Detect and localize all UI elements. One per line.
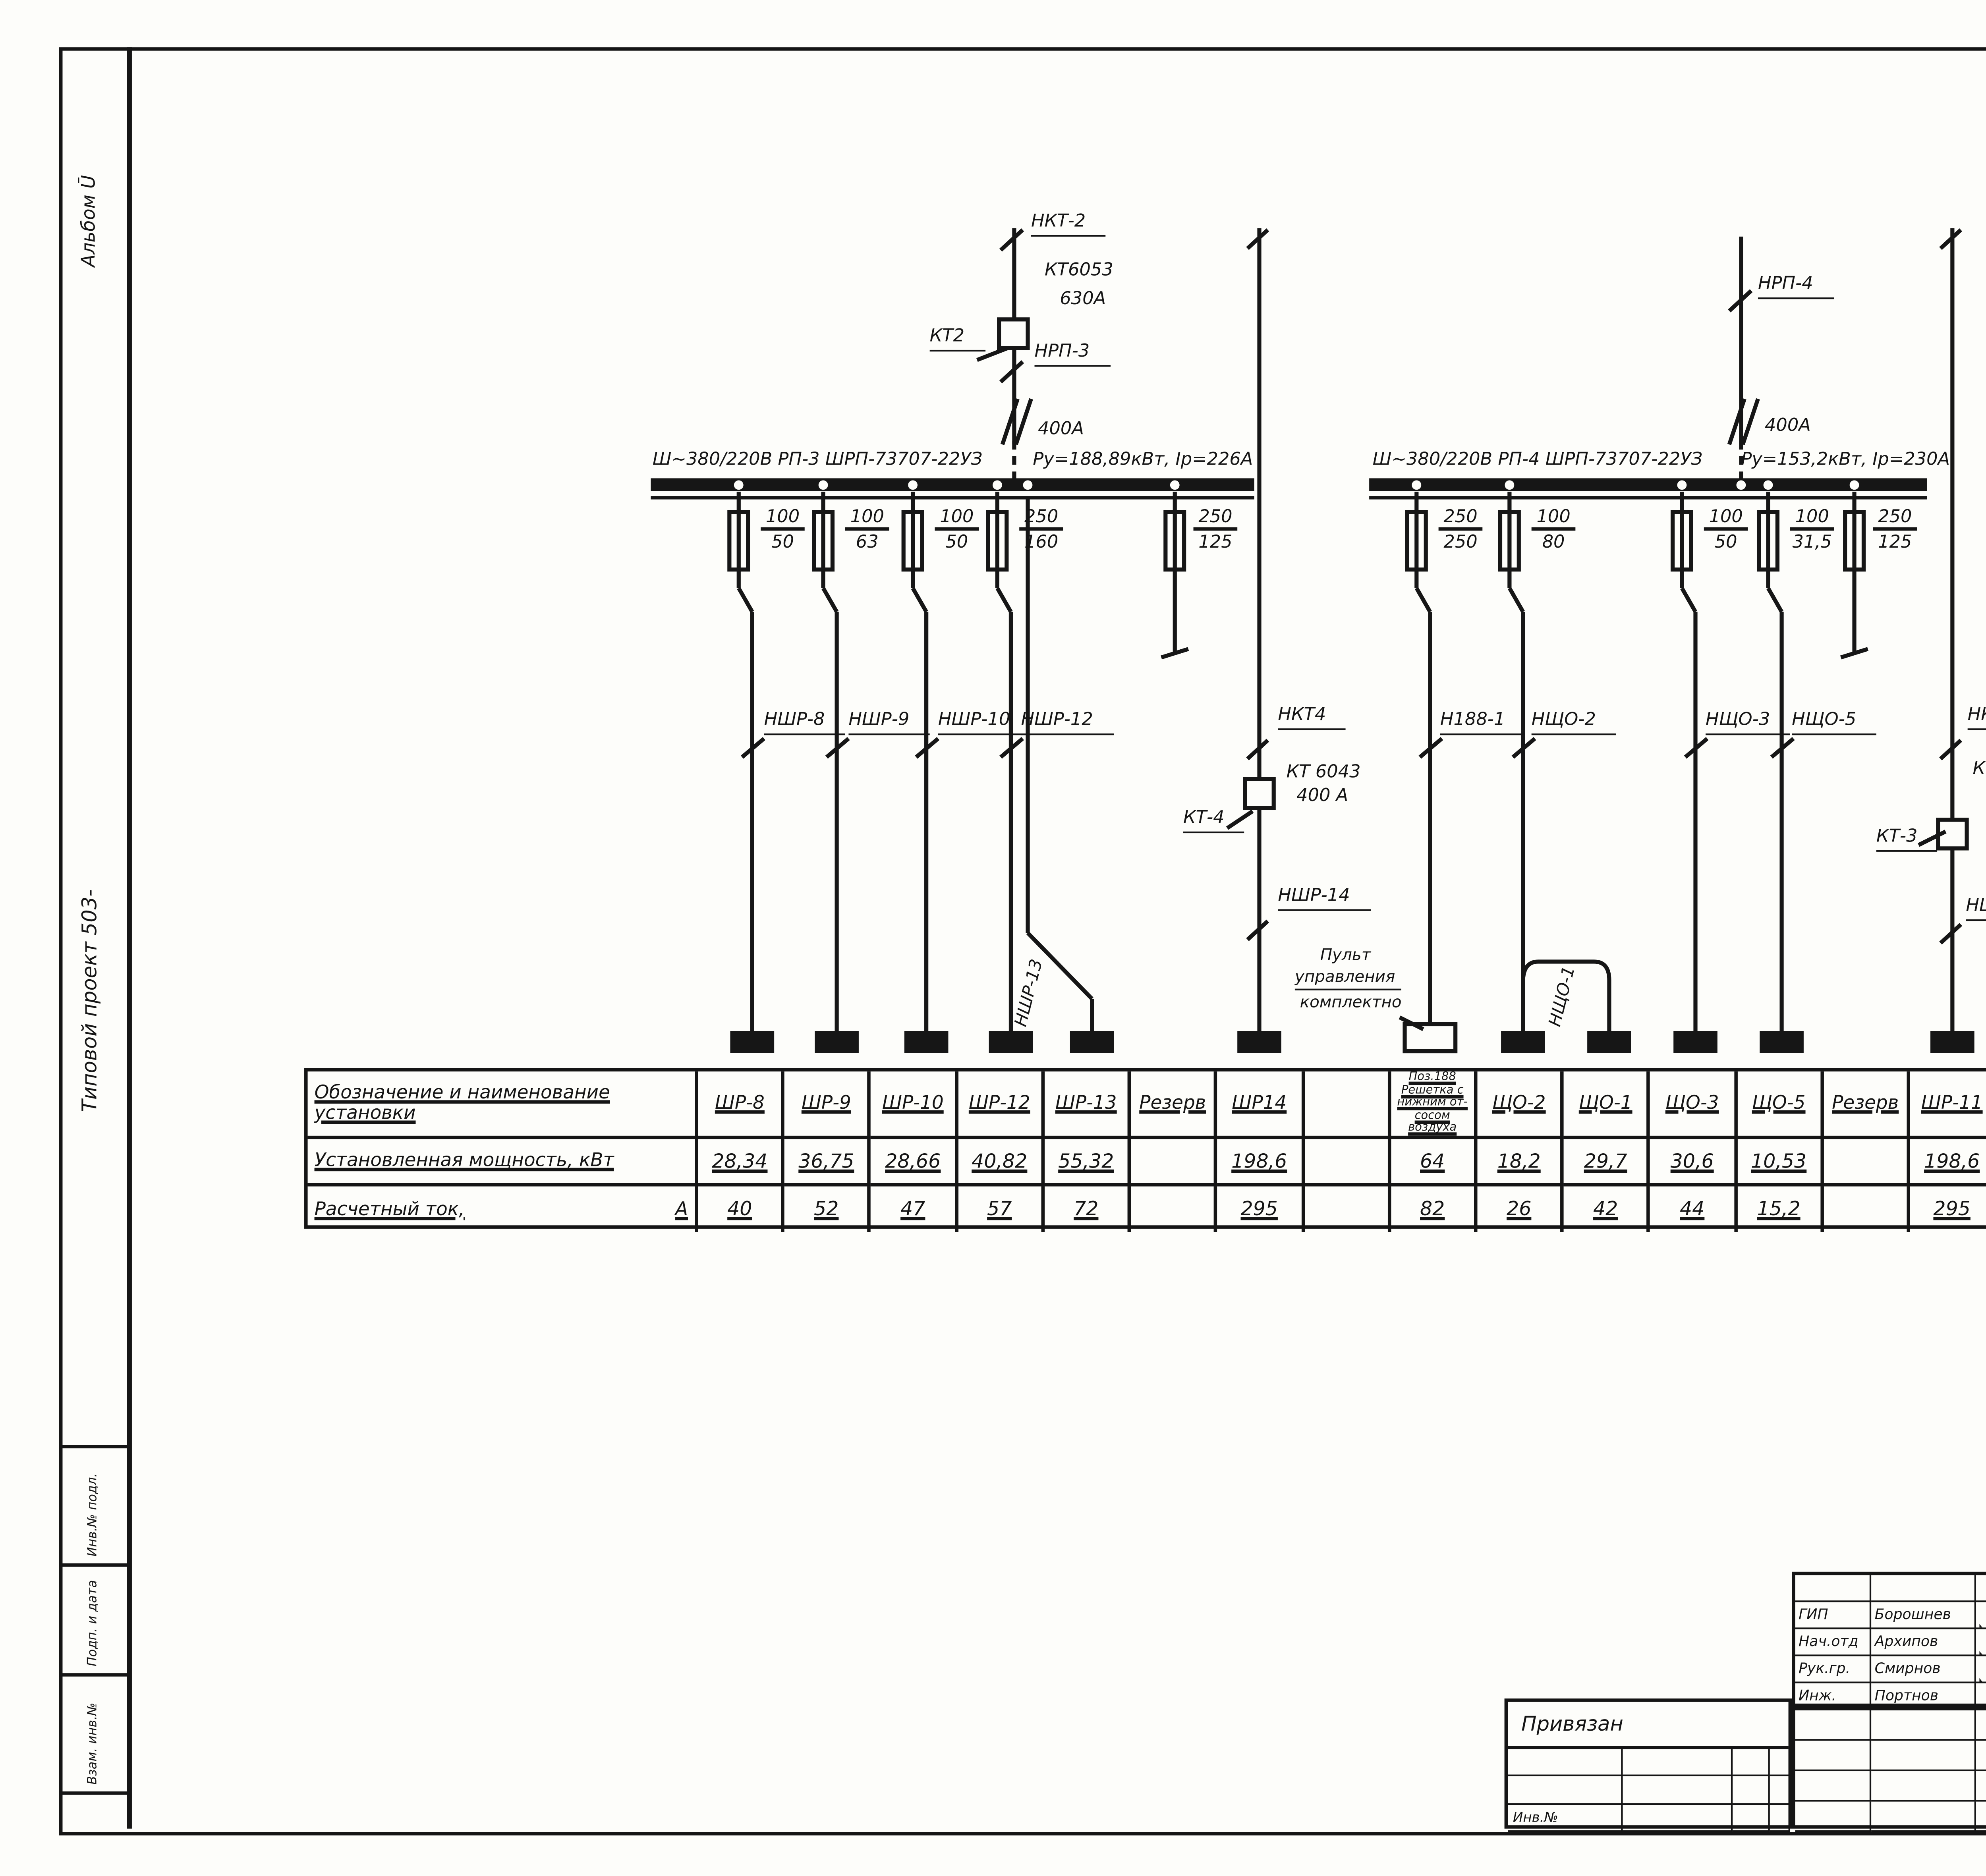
bus-tap-dot (1023, 480, 1033, 490)
sig-name: Борошнев (1871, 1602, 1976, 1629)
fuse-rating-shr10: 10050 (935, 507, 979, 553)
load-box-shr9 (815, 1031, 859, 1053)
signature-table: ГИП Борошнев Нач.отд Архипов Рук.гр. Сми… (1792, 1572, 1986, 1707)
sig-signature (1976, 1683, 1986, 1710)
table-current-cell: 26 (1477, 1187, 1564, 1232)
rp3-bus-params: Ру=188,89кВт, Iр=226А (1033, 451, 1253, 471)
cable-label-nkt4: НКТ4 (1278, 706, 1346, 730)
bus-tap-dot (1850, 480, 1859, 490)
table-power-cell: 64 (1391, 1139, 1477, 1186)
rp4-disconnect-blade (1743, 399, 1758, 444)
fuse-rating-scho5: 10031,5 (1790, 507, 1834, 553)
bus-tap-dot (908, 480, 918, 490)
cable-tick (1001, 362, 1022, 382)
load-box-scho1 (1587, 1031, 1631, 1053)
table-current-cell: 42 (1564, 1187, 1650, 1232)
bus-tap-dot (1736, 480, 1746, 490)
sig-role: Нач.отд (1795, 1629, 1872, 1656)
fuse-rating-reserve: 250125 (1194, 507, 1238, 553)
load-box-shr11 (1930, 1031, 1974, 1053)
kt2-amps-label: 630А (1060, 291, 1106, 310)
rp4-busbar (1369, 478, 1927, 491)
cable-label-n188-1: Н188-1 (1440, 712, 1526, 735)
kt4-switch-box (1245, 779, 1273, 808)
nrp3-cable-label: НРП-3 (1035, 343, 1110, 366)
pult-note-line2: управления (1295, 970, 1402, 991)
table-power-cell (1824, 1139, 1910, 1186)
table-col-header: ШР-13 (1045, 1071, 1131, 1139)
table-current-cell: 40 (698, 1187, 785, 1232)
feeder-bend (1768, 588, 1782, 612)
signature-squiggle (1979, 1607, 1986, 1622)
feeder-bend (913, 588, 926, 612)
feeder-bend (997, 588, 1011, 612)
feeder-bend (739, 588, 752, 612)
table-col-header: ЩО-1 (1564, 1071, 1650, 1139)
load-box-shr14 (1237, 1031, 1281, 1053)
cable-tick (1001, 230, 1022, 250)
table-current-cell: 15,2 (1737, 1187, 1824, 1232)
sig-role: Инж. (1795, 1683, 1872, 1710)
table-col-header: Поз.188 Решетка с нижним от- сосом возду… (1391, 1071, 1477, 1139)
rp3-incoming-cable-label: НКТ-2 (1031, 213, 1106, 236)
schematic-canvas (0, 0, 1986, 1876)
table-power-cell: 40,82 (958, 1139, 1045, 1186)
fuse-rating-shr9: 10063 (845, 507, 889, 553)
table-col-header: Резерв (1824, 1071, 1910, 1139)
cable-label-nscho5: НЩО-5 (1792, 712, 1876, 735)
sig-name: Портнов (1871, 1683, 1976, 1710)
sig-cell-empty (1871, 1575, 1976, 1602)
table-col-header: ШР-12 (958, 1071, 1045, 1139)
bus-tap-dot (993, 480, 1002, 490)
cable-label-nscho3: НЩО-3 (1706, 712, 1790, 735)
kt2-switch-box (999, 319, 1028, 348)
signature-squiggle (1979, 1661, 1986, 1676)
load-box-shr13 (1070, 1031, 1114, 1053)
table-power-cell (1304, 1139, 1391, 1186)
equipment-table: Обозначение и наименование установки ШР-… (304, 1068, 1986, 1229)
table-power-cell: 198,6 (1218, 1139, 1304, 1186)
table-col-header: Резерв (1131, 1071, 1218, 1139)
sig-signature (1976, 1602, 1986, 1629)
table-row2-label: Установленная мощность, кВт (308, 1139, 698, 1186)
kt2-name-label: КТ2 (930, 328, 985, 351)
attached-label: Привязан (1508, 1702, 1788, 1749)
feeder-bend (1509, 588, 1523, 612)
sig-signature (1976, 1629, 1986, 1656)
attached-grid: Инв.№ (1508, 1749, 1788, 1832)
table-col-header: ШР-9 (785, 1071, 871, 1139)
rp4-bus-title: Ш~380/220В РП-4 ШРП-73707-22УЗ (1373, 451, 1703, 471)
control-desk-box (1405, 1024, 1456, 1051)
signature-squiggle (1979, 1688, 1986, 1703)
rp3-bus-title: Ш~380/220В РП-3 ШРП-73707-22УЗ (653, 451, 983, 471)
bus-tap-dot (1412, 480, 1421, 490)
cable-label-nshr11: НШР-11 (1966, 897, 1986, 921)
load-box-shr12 (989, 1031, 1033, 1053)
table-current-cell (1824, 1187, 1910, 1232)
rp4-incoming-cable-label: НРП-4 (1758, 276, 1833, 299)
table-current-cell: 72 (1045, 1187, 1131, 1232)
table-row3-label: Расчетный ток,А (308, 1187, 698, 1232)
kt4-amps-label: 400 А (1296, 787, 1348, 807)
kt3-name-label: КТ-3 (1876, 828, 1938, 851)
feeder-bend (823, 588, 837, 612)
table-power-cell: 28,66 (871, 1139, 958, 1186)
kt4-name-label: КТ-4 (1183, 809, 1245, 832)
table-col-header: ШР14 (1218, 1071, 1304, 1139)
cable-label-nshr9: НШР-9 (848, 712, 929, 735)
cable-label-nshr10: НШР-10 (938, 712, 1030, 735)
load-box-scho3 (1673, 1031, 1717, 1053)
table-power-cell: 30,6 (1650, 1139, 1737, 1186)
table-col-header: ЩО-3 (1650, 1071, 1737, 1139)
inventory-number-label: Инв.№ (1508, 1804, 1623, 1832)
sig-cell-empty (1795, 1575, 1872, 1602)
table-power-cell (1131, 1139, 1218, 1186)
bus-tap-dot (734, 480, 744, 490)
bus-tap-dot (819, 480, 828, 490)
table-power-cell: 36,75 (785, 1139, 871, 1186)
table-col-header: ЩО-5 (1737, 1071, 1824, 1139)
table-col-header: ЩО-2 (1477, 1071, 1564, 1139)
sig-role: ГИП (1795, 1602, 1872, 1629)
table-col-header: ШР-11 (1910, 1071, 1986, 1139)
load-box-scho5 (1760, 1031, 1804, 1053)
bus-tap-dot (1170, 480, 1180, 490)
rp3-switch-amps-label: 400А (1038, 421, 1084, 440)
sig-role: Рук.гр. (1795, 1656, 1872, 1683)
signature-squiggle (1979, 1634, 1986, 1649)
bus-tap-dot (1677, 480, 1687, 490)
table-col-header (1304, 1071, 1391, 1139)
fuse-rating-scho2: 10080 (1532, 507, 1576, 553)
bus-tap-dot (1505, 480, 1514, 490)
rp3-busbar-underline (651, 496, 1254, 500)
drawing-sheet: 8 Альбом Ū Типовой проект 503- Инв.№ под… (0, 0, 1986, 1876)
table-current-cell: 295 (1218, 1187, 1304, 1232)
kt2-type-label: КТ6053 (1045, 262, 1113, 282)
attached-block: Привязан Инв.№ (1505, 1698, 1792, 1829)
feeder-bend (1682, 588, 1695, 612)
pult-note-line1: Пульт (1320, 948, 1371, 965)
table-row1-label: Обозначение и наименование установки (308, 1071, 698, 1139)
table-col-header: ШР-10 (871, 1071, 958, 1139)
load-box-shr10 (904, 1031, 949, 1053)
table-power-cell: 28,34 (698, 1139, 785, 1186)
sig-name: Архипов (1871, 1629, 1976, 1656)
table-current-cell (1304, 1187, 1391, 1232)
table-current-cell: 47 (871, 1187, 958, 1232)
table-current-cell: 44 (1650, 1187, 1737, 1232)
cable-label-nshr12: НШР-12 (1021, 712, 1113, 735)
rp4-bus-params: Ру=153,2кВт, Iр=230А (1741, 451, 1950, 471)
kt4-type-label: КТ 6043 (1287, 764, 1361, 784)
bus-tap-dot (1764, 480, 1773, 490)
table-current-cell: 295 (1910, 1187, 1986, 1232)
fuse-rating-n188: 250250 (1439, 507, 1483, 553)
sig-name: Смирнов (1871, 1656, 1976, 1683)
table-power-cell: 29,7 (1564, 1139, 1650, 1186)
cable-label-nshr14: НШР-14 (1278, 887, 1370, 910)
rp3-disconnect-blade (1016, 399, 1031, 444)
fuse-rating-scho3: 10050 (1704, 507, 1748, 553)
fuse-rating-shr12: 250160 (1019, 507, 1063, 553)
table-current-cell: 57 (958, 1187, 1045, 1232)
cable-label-nkt3: НКТ3 (1968, 706, 1986, 730)
table-col-header: ШР-8 (698, 1071, 785, 1139)
signature-table-empty-rows (1792, 1707, 1986, 1828)
cable-label-nscho2: НЩО-2 (1532, 712, 1616, 735)
load-box-shr8 (730, 1031, 774, 1053)
sig-signature (1976, 1656, 1986, 1683)
rp4-busbar-underline (1369, 496, 1927, 500)
sig-cell-empty (1976, 1575, 1986, 1602)
fuse-rating-reserve: 250125 (1873, 507, 1917, 553)
feeder-bend (1416, 588, 1430, 612)
table-power-cell: 18,2 (1477, 1139, 1564, 1186)
table-current-cell: 52 (785, 1187, 871, 1232)
rp4-switch-amps-label: 400А (1765, 417, 1811, 437)
cable-label-nshr8: НШР-8 (764, 712, 845, 735)
table-current-cell: 82 (1391, 1187, 1477, 1232)
load-box-scho2 (1501, 1031, 1545, 1053)
fuse-rating-shr8: 10050 (761, 507, 805, 553)
pult-note-line3: комплектно (1300, 996, 1402, 1013)
table-current-cell (1131, 1187, 1218, 1232)
table-power-cell: 55,32 (1045, 1139, 1131, 1186)
table-power-cell: 198,6 (1910, 1139, 1986, 1186)
kt3-type-label: КТ 6043 (1972, 760, 1986, 780)
table-power-cell: 10,53 (1737, 1139, 1824, 1186)
